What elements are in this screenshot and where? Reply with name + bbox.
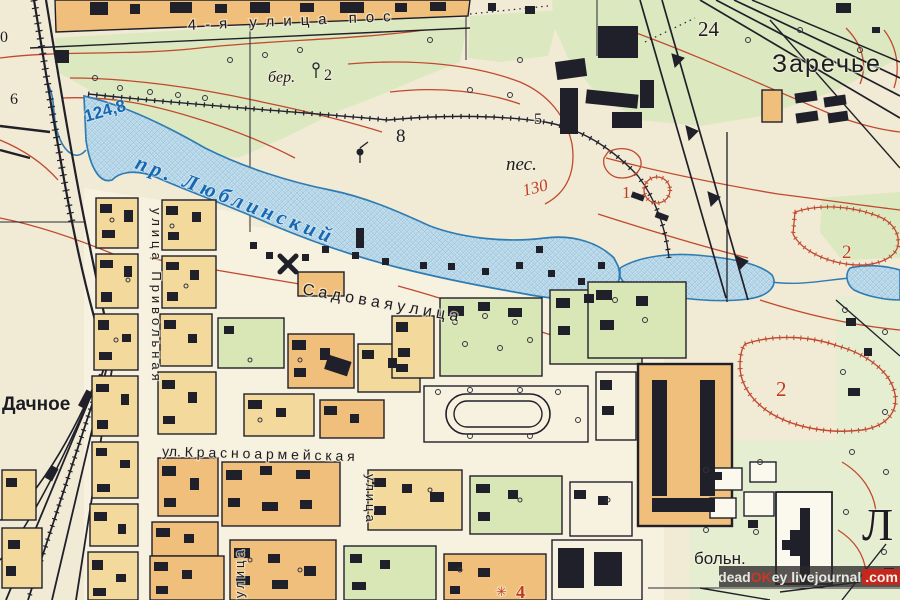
label-dachnoye: Дачное — [2, 394, 70, 415]
label-ulitsa-s: улица — [363, 474, 378, 525]
label-n0: 0 — [0, 29, 8, 46]
watermark-livejournal: livejournal — [791, 570, 861, 584]
label-sand: пес. — [506, 154, 537, 175]
edge-pond — [847, 266, 900, 300]
label-n1-quarry: 1 — [622, 183, 631, 202]
stadium — [424, 386, 588, 442]
label-birch-num: 2 — [324, 67, 332, 84]
watermark-ok: OK — [751, 570, 772, 584]
label-n8: 8 — [396, 126, 406, 147]
label-n24: 24 — [698, 17, 720, 41]
label-n2-quarry-south: 2 — [776, 377, 787, 401]
label-contour-130: 130 — [520, 175, 550, 200]
label-big-l: Л — [862, 499, 893, 550]
lone-tree-icon — [357, 142, 369, 163]
label-ulitsa-sw: улица — [232, 547, 247, 598]
label-zarechye: Заречье — [772, 50, 882, 78]
label-n2-quarry-east: 2 — [842, 242, 852, 263]
watermark-bar: deadOKey.livejournal.com — [719, 566, 900, 587]
watermark-ey: ey — [772, 570, 788, 584]
label-birch: бер. — [268, 69, 295, 86]
topographic-map: 4-я улица пос бер. 2 124,8 пр. Люблински… — [0, 0, 900, 600]
star-icon: ✳ — [496, 584, 507, 599]
label-n4-landmark: 4 — [516, 582, 525, 600]
label-n5: 5 — [534, 111, 542, 128]
watermark-com: .com — [862, 569, 900, 585]
watermark-dead: dead — [718, 570, 751, 584]
label-privolnaya: улица Привольная — [149, 208, 164, 385]
map-canvas: 4-я улица пос бер. 2 124,8 пр. Люблински… — [0, 0, 900, 600]
label-n6: 6 — [10, 91, 18, 108]
